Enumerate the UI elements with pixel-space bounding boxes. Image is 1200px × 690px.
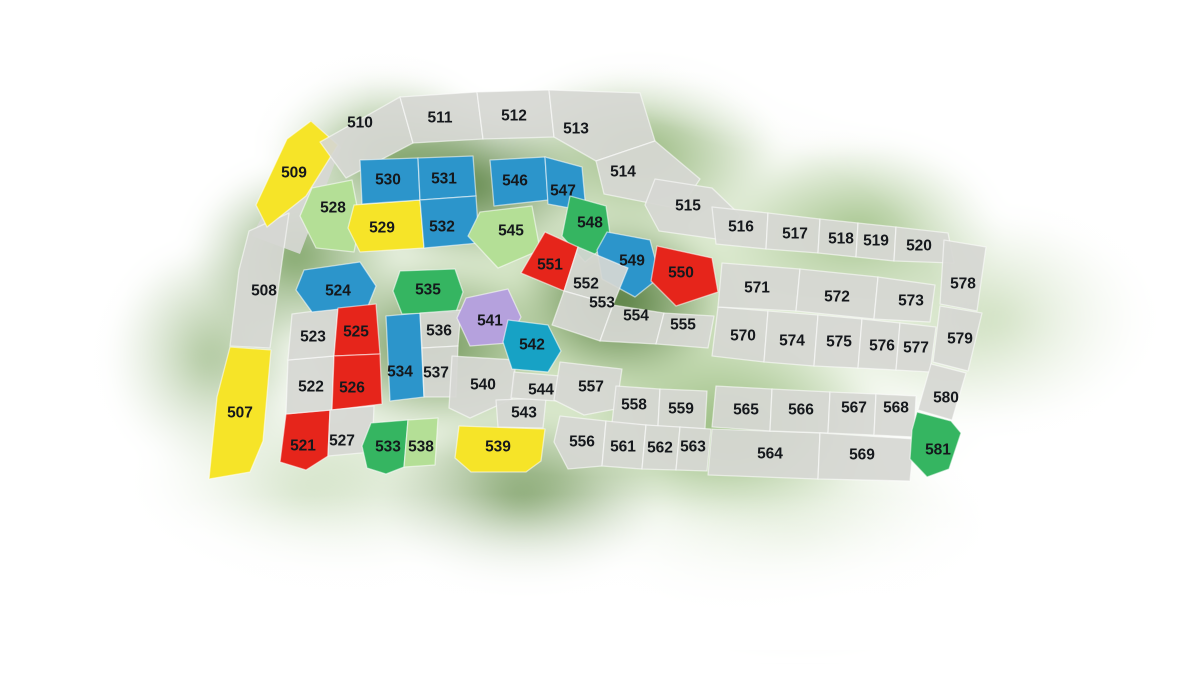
lot-570[interactable]	[712, 307, 768, 362]
lot-579[interactable]	[933, 306, 982, 371]
lot-519[interactable]	[856, 223, 896, 261]
lot-571[interactable]	[718, 263, 800, 311]
lot-562[interactable]	[642, 425, 680, 470]
lot-556[interactable]	[554, 416, 606, 469]
lot-566[interactable]	[770, 389, 830, 433]
lot-539[interactable]	[455, 426, 545, 472]
lot-558[interactable]	[612, 386, 660, 426]
lot-542[interactable]	[503, 320, 561, 372]
lot-526[interactable]	[332, 354, 382, 410]
lot-544[interactable]	[511, 372, 560, 401]
lot-569[interactable]	[818, 433, 914, 481]
lot-523[interactable]	[288, 308, 338, 360]
lot-563[interactable]	[676, 427, 711, 471]
lot-531[interactable]	[418, 156, 476, 200]
lot-573[interactable]	[874, 277, 935, 322]
lot-534[interactable]	[386, 313, 424, 401]
lot-568[interactable]	[874, 394, 916, 437]
lot-578[interactable]	[940, 240, 986, 311]
lot-522[interactable]	[286, 356, 334, 414]
lot-524[interactable]	[296, 262, 376, 312]
subdivision-lot-map: 5075085095105115125135145155165175185195…	[0, 0, 1200, 650]
lot-577[interactable]	[896, 323, 936, 372]
lot-521[interactable]	[280, 410, 330, 470]
lot-518[interactable]	[818, 219, 858, 257]
lot-561[interactable]	[602, 421, 646, 469]
lot-517[interactable]	[766, 213, 820, 253]
lot-533[interactable]	[362, 420, 408, 474]
lot-555[interactable]	[656, 313, 714, 348]
lot-550[interactable]	[651, 246, 718, 306]
lot-567[interactable]	[828, 392, 876, 435]
lot-546[interactable]	[490, 157, 548, 206]
lot-538[interactable]	[404, 418, 438, 467]
lot-580[interactable]	[918, 364, 966, 420]
lot-529[interactable]	[348, 200, 424, 252]
lot-parcels	[209, 90, 986, 481]
lot-543[interactable]	[496, 398, 546, 428]
lot-525[interactable]	[334, 304, 380, 356]
lot-530[interactable]	[360, 158, 420, 204]
aerial-site-plan: 5075085095105115125135145155165175185195…	[0, 0, 1200, 650]
lot-574[interactable]	[764, 311, 818, 366]
lot-535[interactable]	[393, 269, 463, 314]
lot-516[interactable]	[712, 207, 768, 249]
lot-559[interactable]	[658, 389, 707, 429]
lot-557[interactable]	[554, 362, 622, 415]
lot-572[interactable]	[796, 269, 878, 319]
lot-565[interactable]	[712, 386, 772, 431]
lot-532[interactable]	[420, 196, 479, 248]
lot-507[interactable]	[209, 347, 271, 479]
lot-575[interactable]	[814, 315, 862, 368]
lot-576[interactable]	[858, 319, 900, 370]
lot-512[interactable]	[477, 90, 554, 139]
lot-511[interactable]	[400, 92, 483, 143]
lot-581[interactable]	[910, 412, 961, 477]
lot-508[interactable]	[230, 213, 289, 348]
lot-564[interactable]	[708, 429, 820, 479]
lot-536[interactable]	[420, 310, 461, 348]
